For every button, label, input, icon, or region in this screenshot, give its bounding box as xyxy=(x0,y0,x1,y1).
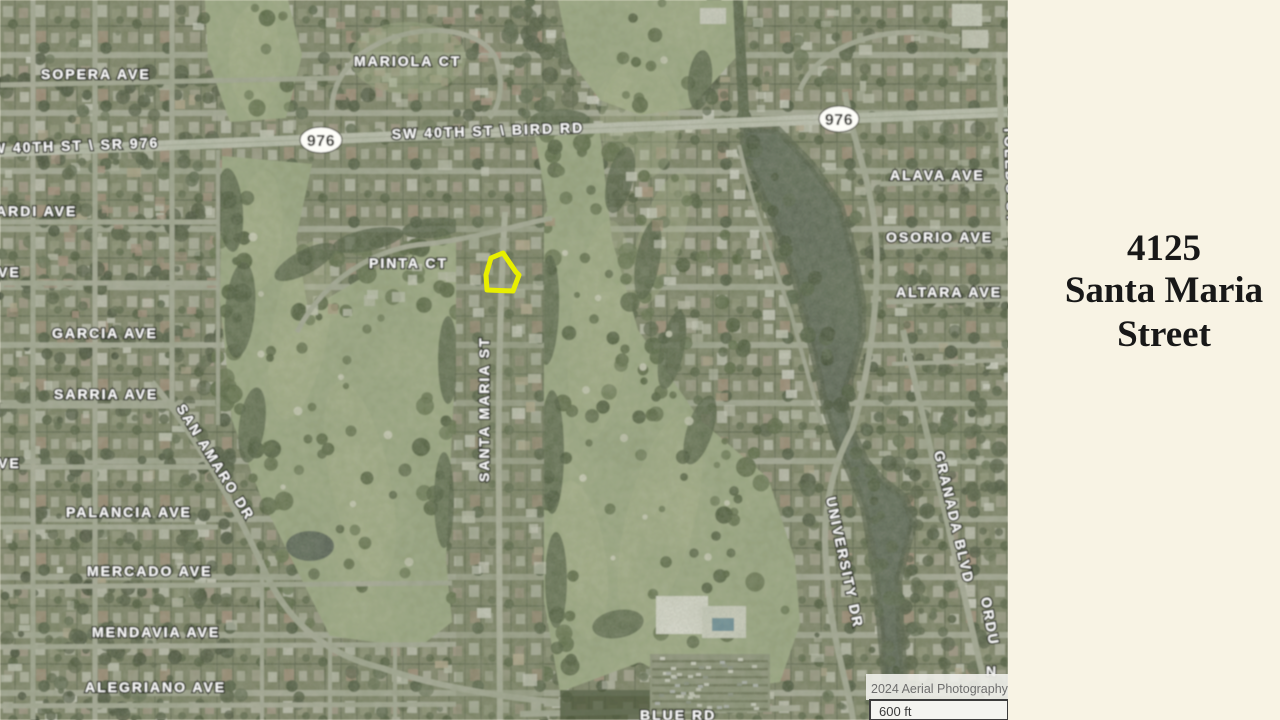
svg-text:ALTARA AVE: ALTARA AVE xyxy=(896,284,1002,300)
svg-text:ARDI AVE: ARDI AVE xyxy=(0,203,77,219)
svg-text:4125: 4125 xyxy=(1127,228,1201,269)
svg-text:OSORIO AVE: OSORIO AVE xyxy=(886,229,993,245)
svg-text:ALAVA AVE: ALAVA AVE xyxy=(890,167,985,183)
svg-text:Santa Maria: Santa Maria xyxy=(1065,270,1263,311)
svg-text:SOPERA AVE: SOPERA AVE xyxy=(41,66,151,82)
svg-text:VE: VE xyxy=(0,264,21,280)
svg-text:BLUE RD: BLUE RD xyxy=(640,707,716,720)
svg-text:MARIOLA CT: MARIOLA CT xyxy=(354,53,461,69)
svg-text:976: 976 xyxy=(307,133,335,150)
svg-text:ALEGRIANO AVE: ALEGRIANO AVE xyxy=(85,679,226,695)
svg-text:2024 Aerial Photography: 2024 Aerial Photography xyxy=(871,682,1009,696)
svg-text:Street: Street xyxy=(1117,314,1211,355)
svg-text:MENDAVIA AVE: MENDAVIA AVE xyxy=(92,624,220,640)
svg-text:600 ft: 600 ft xyxy=(879,704,912,719)
svg-text:976: 976 xyxy=(825,112,853,129)
svg-text:MERCADO AVE: MERCADO AVE xyxy=(87,563,212,579)
svg-text:SANTA MARIA ST: SANTA MARIA ST xyxy=(476,336,492,482)
svg-text:VE: VE xyxy=(0,455,21,471)
svg-text:PALANCIA AVE: PALANCIA AVE xyxy=(66,504,192,520)
svg-text:SARRIA AVE: SARRIA AVE xyxy=(54,386,158,402)
svg-text:PINTA CT: PINTA CT xyxy=(369,255,448,271)
svg-text:GARCIA AVE: GARCIA AVE xyxy=(52,325,158,341)
